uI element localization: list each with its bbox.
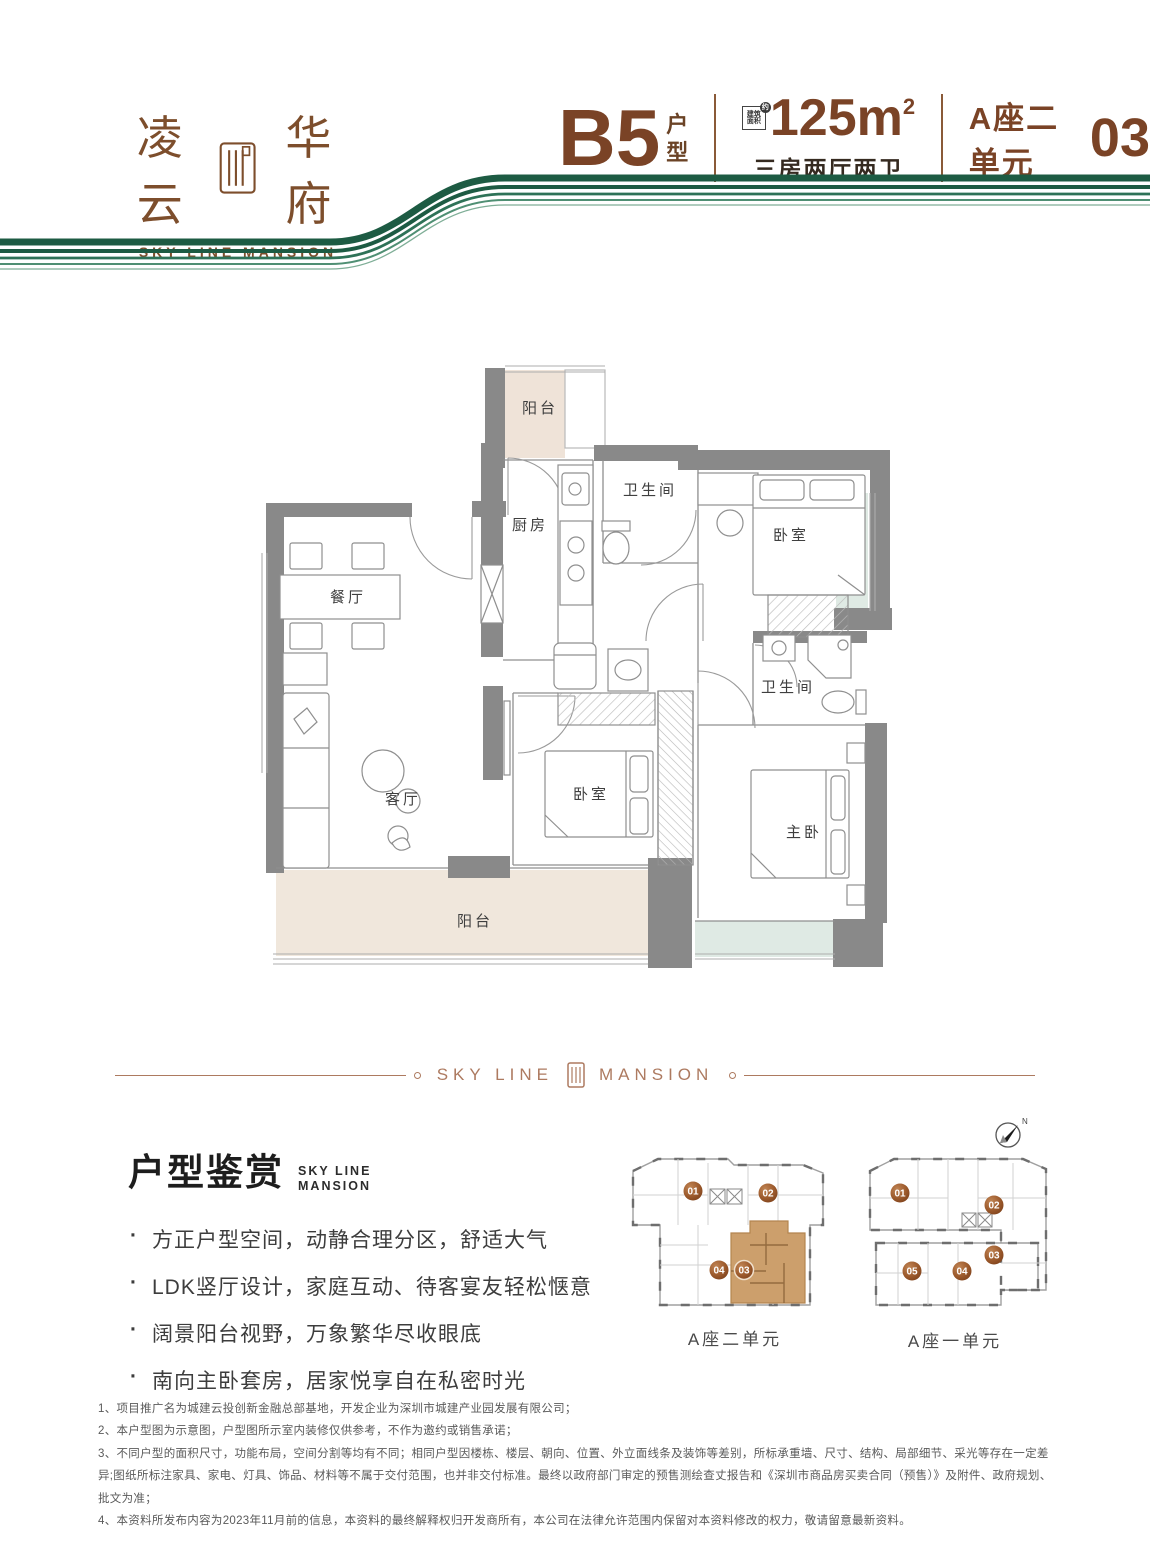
selling-point: ·南向主卧套房，居家悦享自在私密时光 [128, 1365, 598, 1395]
wardrobe-2 [558, 693, 655, 725]
toilet-1 [603, 532, 629, 564]
bullet-dot: · [130, 1365, 138, 1389]
desk-chair [717, 510, 743, 536]
divider-seal-icon [567, 1062, 585, 1088]
section-divider: SKY LINE MANSION [0, 1062, 1150, 1088]
area-exponent: 2 [903, 94, 915, 120]
fridge [554, 643, 596, 689]
unit-badge-highlighted: 03 [738, 1266, 750, 1277]
label-bath-2: 卫生间 [761, 679, 815, 696]
desk [698, 473, 758, 505]
unit-badge: 01 [894, 1189, 906, 1200]
divider-ring-left [414, 1072, 421, 1079]
selling-point: ·阔景阳台视野，万象繁华尽收眼底 [128, 1318, 598, 1348]
label-dining: 餐厅 [330, 589, 366, 606]
area-badge-circle: 约 [760, 102, 771, 113]
selling-point: ·LDK竖厅设计，家庭互动、待客宴友轻松惬意 [128, 1271, 598, 1301]
window-bay-top [565, 370, 605, 448]
divider-line-left [115, 1075, 406, 1076]
coffee-table [362, 750, 404, 792]
area-badge-icon: 建筑 面积 约 [742, 106, 766, 130]
label-living: 客厅 [385, 791, 421, 808]
label-balcony-top: 阳台 [522, 400, 558, 417]
tv [504, 701, 510, 775]
appreciation-section: 户型鉴赏 SKY LINE MANSION ·方正户型空间，动静合理分区，舒适大… [128, 1142, 598, 1412]
selling-point-text: 阔景阳台视野，万象繁华尽收眼底 [152, 1318, 482, 1348]
nightstand [847, 885, 865, 905]
divider-text-left: SKY LINE [437, 1065, 553, 1085]
bullet-dot: · [130, 1271, 138, 1295]
floorplan: 阳台 厨房 卫生间 卧室 餐厅 卫生间 客厅 卧室 主卧 阳台 [258, 353, 900, 975]
label-balcony-bottom: 阳台 [457, 913, 493, 930]
flyer-page: 凌云 华府 SKY LINE MANSION B5 户 型 建筑 [0, 0, 1150, 1560]
disclaimer-line: 3、不同户型的面积尺寸，功能布局，空间分割等均有不同；相同户型因楼栋、楼层、朝向… [98, 1443, 1060, 1510]
area-value: 125m [770, 92, 903, 144]
compass-icon: N [996, 1117, 1028, 1147]
toilet-1-tank [602, 521, 630, 531]
divider-ring-right [729, 1072, 736, 1079]
unit-badge: 05 [906, 1267, 918, 1278]
building-right: 01 02 03 05 04 A座一单元 [870, 1159, 1046, 1351]
label-bath-1: 卫生间 [623, 482, 677, 499]
divider-text-right: MANSION [599, 1065, 713, 1085]
keyplan: N 01 02 [598, 1113, 1082, 1373]
balcony-bottom-floor [276, 870, 648, 956]
selling-point-text: LDK竖厅设计，家庭互动、待客宴友轻松惬意 [152, 1271, 592, 1301]
toilet-2-tank [856, 690, 866, 714]
appreciation-title: 户型鉴赏 [128, 1142, 284, 1196]
closet-column [658, 691, 693, 865]
unit-badge: 04 [956, 1267, 968, 1278]
bullet-dot: · [130, 1224, 138, 1248]
plan-suffix-1: 户 [666, 111, 688, 139]
unit-badge: 03 [988, 1251, 1000, 1262]
console-table [283, 653, 327, 685]
selling-point-text: 南向主卧套房，居家悦享自在私密时光 [152, 1365, 526, 1395]
unit-badge: 04 [713, 1266, 725, 1277]
area-badge-line2: 面积 [747, 118, 761, 125]
disclaimer: 1、项目推广名为城建云投创新金融总部基地，开发企业为深圳市城建产业园发展有限公司… [98, 1398, 1060, 1533]
nightstand [847, 743, 865, 763]
label-kitchen: 厨房 [512, 517, 548, 534]
selling-point: ·方正户型空间，动静合理分区，舒适大气 [128, 1224, 598, 1254]
building-left: 01 02 04 03 A座二单元 [633, 1159, 823, 1349]
toilet-2 [822, 691, 854, 713]
unit-badge: 02 [988, 1201, 1000, 1212]
label-master: 主卧 [786, 824, 822, 841]
wardrobe-1 [768, 595, 848, 637]
appreciation-sub-2: MANSION [298, 1179, 371, 1193]
divider-line-right [744, 1075, 1035, 1076]
compass-n: N [1022, 1117, 1028, 1126]
appreciation-sub-1: SKY LINE [298, 1164, 371, 1178]
unit-badge: 01 [687, 1187, 699, 1198]
green-ribbon [0, 150, 1150, 290]
label-bedroom-1: 卧室 [773, 527, 809, 544]
bay-window-bottom [695, 921, 835, 957]
bullet-dot: · [130, 1318, 138, 1342]
area-badge-line1: 建筑 [747, 111, 761, 118]
selling-point-text: 方正户型空间，动静合理分区，舒适大气 [152, 1224, 548, 1254]
stove [560, 521, 592, 605]
building-right-label: A座一单元 [908, 1332, 1002, 1351]
unit-badge: 02 [762, 1189, 774, 1200]
selling-points: ·方正户型空间，动静合理分区，舒适大气 ·LDK竖厅设计，家庭互动、待客宴友轻松… [128, 1224, 598, 1395]
disclaimer-line: 1、项目推广名为城建云投创新金融总部基地，开发企业为深圳市城建产业园发展有限公司… [98, 1398, 1060, 1420]
building-left-label: A座二单元 [688, 1330, 782, 1349]
label-bedroom-2: 卧室 [573, 786, 609, 803]
disclaimer-line: 4、本资料所发布内容为2023年11月前的信息，本资料的最终解释权归开发商所有，… [98, 1510, 1060, 1532]
disclaimer-line: 2、本户型图为示意图，户型图所示室内装修仅供参考，不作为邀约或销售承诺； [98, 1420, 1060, 1442]
